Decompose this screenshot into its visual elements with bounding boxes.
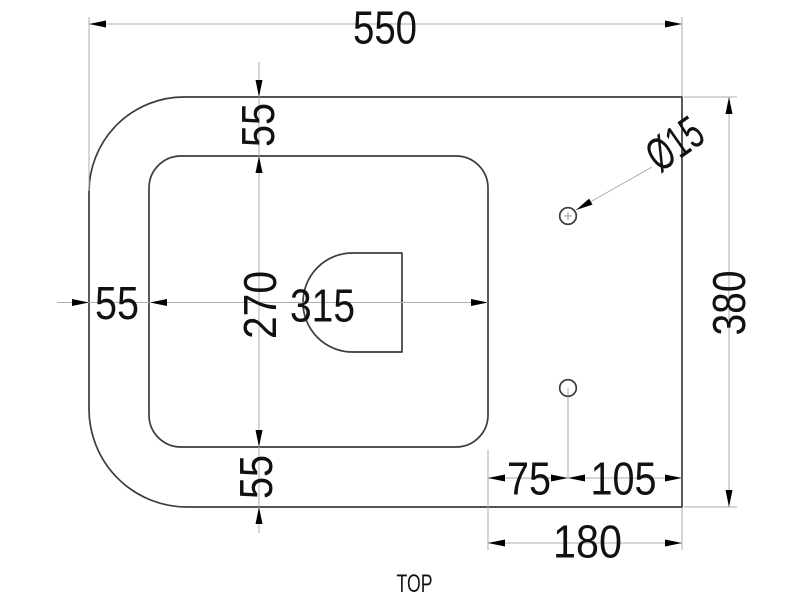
arrow-55bottom-up: [256, 507, 263, 524]
mounting-holes: [560, 208, 577, 397]
arrow-270-up: [256, 156, 263, 173]
arrow-380-up: [726, 97, 733, 114]
dim-label-edge-to-opening-left: 55: [95, 277, 139, 329]
arrow-75-right: [551, 475, 568, 482]
dim-label-opening-depth: 270: [234, 271, 286, 339]
arrow-315-right: [471, 299, 488, 306]
dim-label-edge-to-opening-bottom: 55: [230, 455, 282, 499]
dim-label-opening-width: 315: [290, 280, 355, 332]
arrow-315-left: [150, 299, 167, 306]
arrow-leader-hole: [576, 199, 593, 210]
dimension-labels: 550 55 270 315 55 55 380 75 105 180 Ø15 …: [95, 2, 755, 599]
view-label: TOP: [397, 570, 433, 598]
dim-label-hole-to-right-edge: 105: [591, 453, 657, 505]
arrow-550-right: [665, 21, 682, 28]
arrow-550-left: [89, 21, 106, 28]
arrow-55top-down: [256, 80, 263, 97]
dim-label-overall-width: 550: [353, 2, 417, 54]
dim-label-edge-to-opening-top: 55: [232, 103, 284, 147]
arrow-180-left: [488, 540, 505, 547]
arrow-105-right: [665, 475, 682, 482]
dim-label-opening-to-right-edge: 180: [553, 516, 622, 568]
arrow-75-left: [488, 475, 505, 482]
dim-label-overall-depth: 380: [703, 271, 755, 336]
dim-label-opening-to-hole: 75: [507, 453, 551, 505]
technical-drawing: 550 55 270 315 55 55 380 75 105 180 Ø15 …: [0, 0, 800, 600]
arrow-180-right: [665, 540, 682, 547]
arrow-105-left: [568, 475, 585, 482]
arrow-270-down: [256, 430, 263, 447]
hole-center-mark: [564, 212, 572, 220]
arrow-55left-right: [72, 299, 89, 306]
arrow-380-down: [726, 490, 733, 507]
drawing-canvas: 550 55 270 315 55 55 380 75 105 180 Ø15 …: [0, 0, 800, 600]
